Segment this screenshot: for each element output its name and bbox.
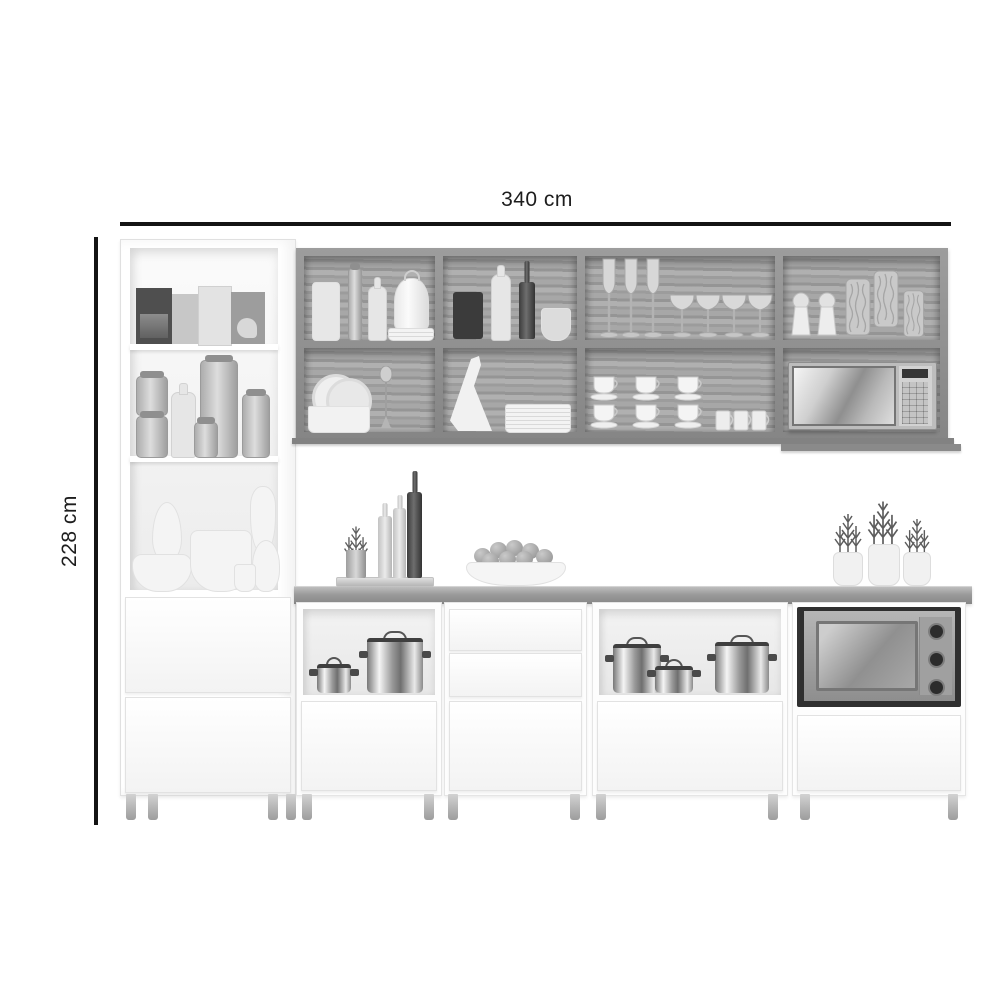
wall-cubby-microwave [783,348,940,432]
dish-rack-icon [308,406,370,433]
microwave-shelf-ledge [781,444,961,451]
ceramic-bowl-icon [132,554,192,592]
base-cabinet-niche-drawer [592,602,788,796]
storage-jar-icon [136,416,168,458]
fruit-bowl-dish [466,562,566,586]
base-drawer-front [449,609,582,651]
oven-knob [930,625,943,638]
round-vase-icon [252,540,280,592]
wall-cubby [585,256,775,340]
pantry-drawer-front [125,597,291,693]
cabinet-foot [148,794,158,820]
herb-cup-icon [346,550,366,578]
pot-body [367,638,423,693]
saucepan-icon [649,659,699,693]
pot-handle [422,651,431,658]
pot-handle [768,654,777,661]
upper-wall-cabinet [296,248,948,440]
base-drawer-front [449,653,582,697]
wall-cubby [304,256,435,340]
stock-pot-icon [709,635,775,693]
white-bottle-icon [491,274,511,341]
milk-bottle-icon [368,286,387,341]
cabinet-foot [800,794,810,820]
canister-icon [312,282,340,341]
fruit-bowl-icon [466,540,566,586]
base-cabinet-oven [792,602,966,796]
oil-bottle-icon [378,516,392,578]
whisk-icon [378,366,394,431]
cabinet-foot [302,794,312,820]
wine-bottle-icon [407,492,422,578]
oven-window [816,621,918,691]
small-jar-icon [194,422,218,458]
cabinet-foot [268,794,278,820]
wall-cubby [585,348,775,432]
wall-cubby [443,348,577,432]
cabinet-foot [596,794,606,820]
shakers-and-glass-jars-icon [787,260,935,338]
microwave-display [902,369,928,378]
oven-control-panel [919,617,952,695]
microwave-door [792,366,896,426]
base-open-niche [599,609,781,695]
saucepan-icon [311,657,357,693]
vase-icon [152,502,182,562]
glass-bottle-icon [242,394,270,458]
pot-handle [647,670,656,677]
wall-cubby [783,256,940,340]
pot-handle [309,669,318,676]
brandy-glasses-icon [669,294,773,338]
pot-body [655,666,693,693]
height-dimension-label: 228 cm [58,469,82,593]
black-canister-icon [453,292,483,339]
cabinet-foot [126,794,136,820]
microwave-icon [788,362,937,430]
plant-pot-icon [868,544,900,586]
width-dimension-line [120,222,951,226]
base-drawer-front [797,715,961,791]
milk-bottle-icon [171,392,196,458]
microwave-keypad [902,382,928,424]
stock-pot-icon [361,631,429,693]
plant-pot-icon [833,552,863,586]
oven-knob [930,653,943,666]
oven-face [804,611,955,701]
champagne-flutes-icon [593,258,667,338]
width-dimension-label: 340 cm [452,188,622,212]
pitcher-icon [449,356,499,431]
cheese-dome-icon [394,278,429,330]
ceramic-cup-icon [234,564,256,592]
food-box-icon [172,294,198,344]
wall-cubby [443,256,577,340]
cabinet-foot [948,794,958,820]
base-door-front [301,701,437,791]
height-dimension-line [94,237,98,825]
storage-jar-icon [136,376,168,416]
plant-pot-icon [903,552,931,586]
pantry-open-shelves [130,248,278,590]
cabinet-foot [286,794,296,820]
olive-oil-bottle-icon [519,282,535,339]
mortar-pestle-icon [541,308,571,341]
pot-handle [359,651,368,658]
plate-stack-icon [388,328,434,341]
pot-handle [605,655,614,662]
cereal-box-icon [136,288,172,344]
herb-plant-icon [898,508,936,554]
wall-cubby [304,348,435,432]
oil-bottle-icon [393,508,406,578]
base-wide-drawer-front [597,701,783,791]
pot-handle [707,654,716,661]
built-in-oven-icon [797,607,961,707]
microwave-control-panel [899,366,932,426]
oven-knob [930,681,943,694]
pantry-drawer-front [125,697,291,793]
pot-handle [692,670,701,677]
food-box-icon [231,292,265,344]
plate-stack-icon [505,404,571,433]
food-box-icon [198,286,232,346]
pot-body [317,664,351,693]
glass-bottle-icon [348,268,362,341]
base-door-front [449,701,582,791]
base-cabinet-niche-door [296,602,442,796]
base-cabinet-drawers [444,602,587,796]
cabinet-foot [768,794,778,820]
pot-body [715,642,769,693]
cabinet-foot [424,794,434,820]
box-art [237,318,257,338]
base-open-niche [303,609,435,695]
serving-tray-icon [336,577,434,587]
cabinet-foot [448,794,458,820]
kitchen-set-dimension-diagram: 340 cm 228 cm [0,0,1000,1000]
box-label [140,314,168,338]
pot-handle [350,669,359,676]
tall-pantry-cabinet [120,239,296,796]
cabinet-foot [570,794,580,820]
cups-and-mugs-icon [589,374,771,432]
